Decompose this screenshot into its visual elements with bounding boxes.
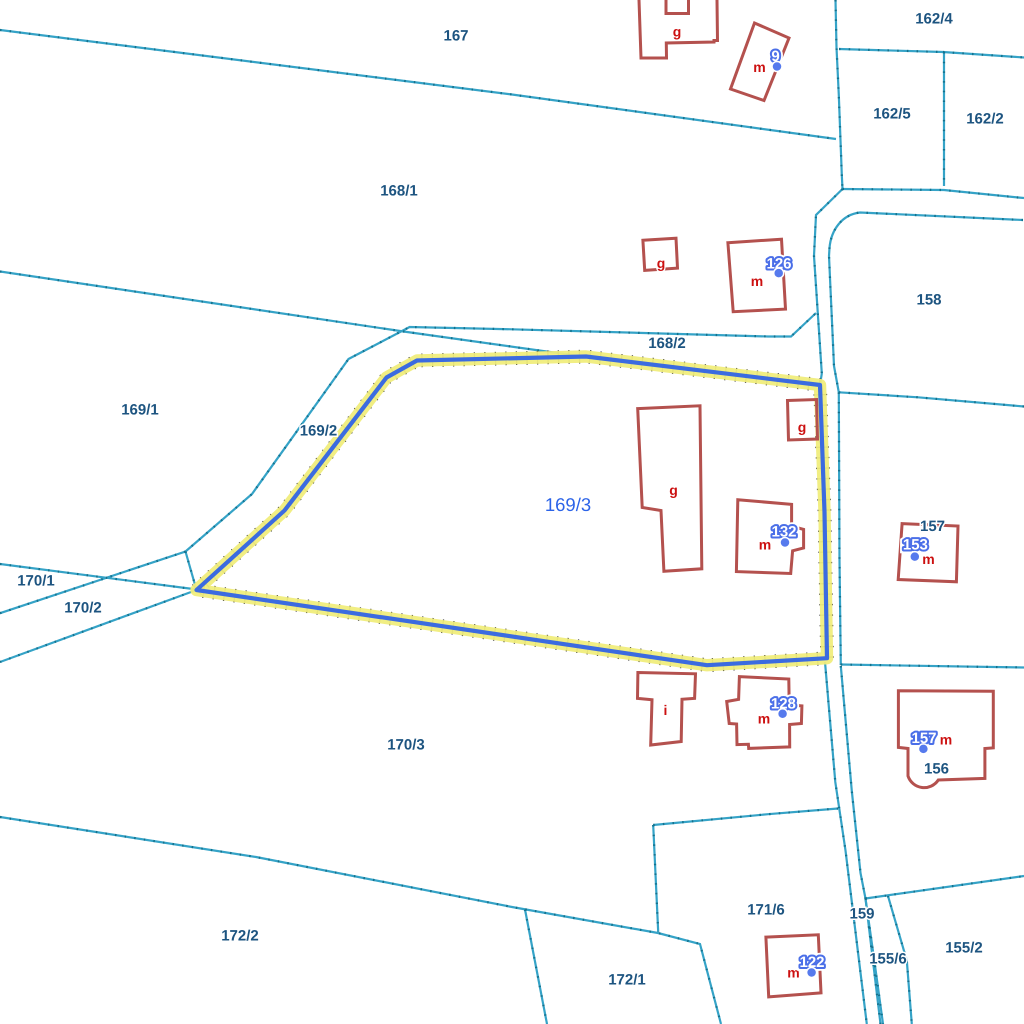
svg-text:i: i xyxy=(664,702,668,718)
svg-text:167: 167 xyxy=(443,28,468,45)
svg-text:m: m xyxy=(751,273,763,289)
svg-text:168/2: 168/2 xyxy=(648,335,686,352)
svg-text:171/6: 171/6 xyxy=(747,902,785,919)
svg-text:155/2: 155/2 xyxy=(945,940,983,957)
svg-text:155/6: 155/6 xyxy=(869,951,907,968)
svg-text:m: m xyxy=(759,537,771,553)
svg-text:g: g xyxy=(669,482,678,498)
svg-text:159: 159 xyxy=(849,906,874,923)
svg-text:169/1: 169/1 xyxy=(121,402,159,419)
svg-text:m: m xyxy=(940,732,952,748)
svg-text:170/2: 170/2 xyxy=(64,600,102,617)
svg-text:170/1: 170/1 xyxy=(17,573,55,590)
svg-text:169/2: 169/2 xyxy=(300,423,338,440)
svg-text:m: m xyxy=(787,965,799,981)
svg-text:g: g xyxy=(657,255,666,271)
svg-text:156: 156 xyxy=(924,761,949,778)
svg-text:162/2: 162/2 xyxy=(966,111,1004,128)
svg-text:g: g xyxy=(798,419,807,435)
svg-text:g: g xyxy=(673,24,682,40)
svg-text:162/5: 162/5 xyxy=(873,106,911,123)
svg-text:172/2: 172/2 xyxy=(221,928,259,945)
svg-text:m: m xyxy=(753,59,765,75)
svg-text:169/3: 169/3 xyxy=(545,494,591,515)
svg-text:m: m xyxy=(758,711,770,727)
svg-text:170/3: 170/3 xyxy=(387,737,425,754)
svg-text:157: 157 xyxy=(920,518,945,535)
svg-text:162/4: 162/4 xyxy=(915,11,953,28)
svg-text:158: 158 xyxy=(916,292,941,309)
svg-text:168/1: 168/1 xyxy=(380,183,418,200)
svg-text:172/1: 172/1 xyxy=(608,972,646,989)
